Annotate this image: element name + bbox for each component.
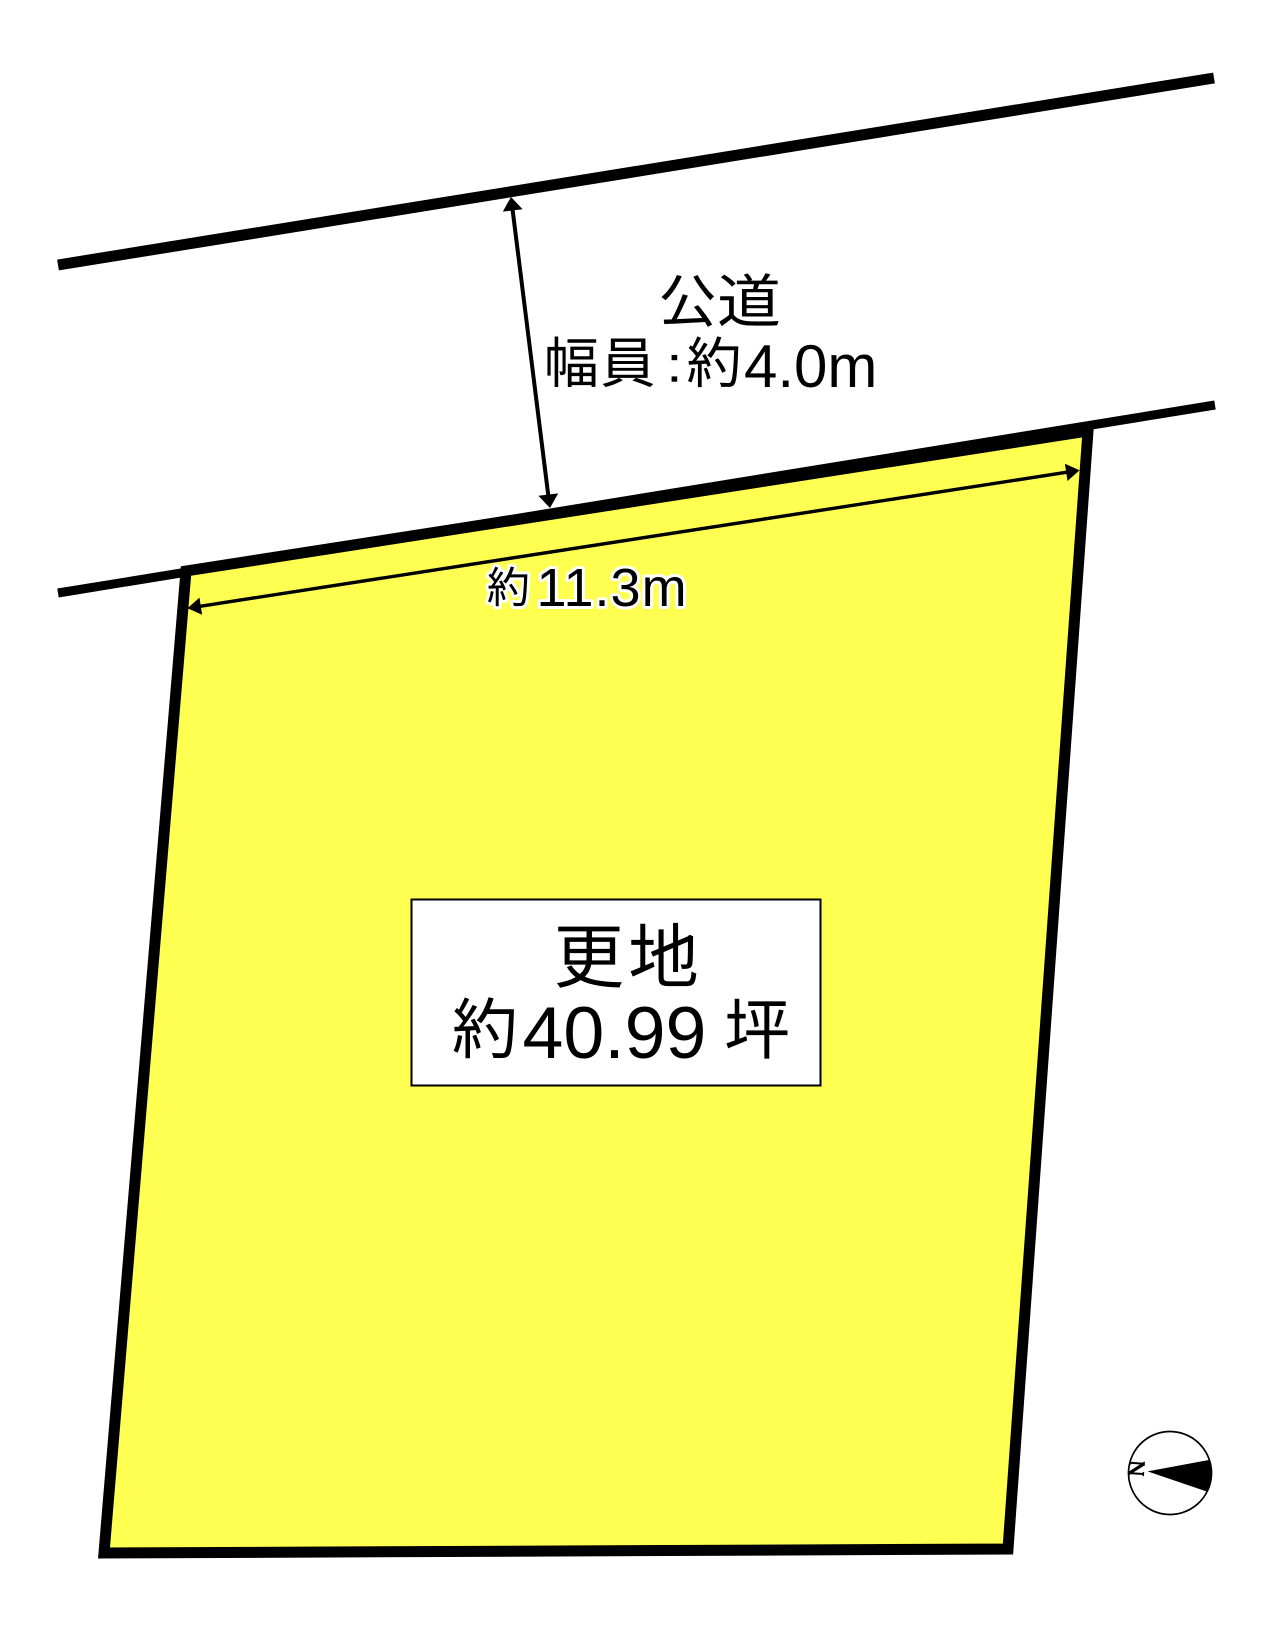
svg-text:11.3m: 11.3m [537, 558, 688, 618]
svg-text:4.0m: 4.0m [744, 333, 877, 400]
svg-text:40.99: 40.99 [523, 991, 707, 1074]
